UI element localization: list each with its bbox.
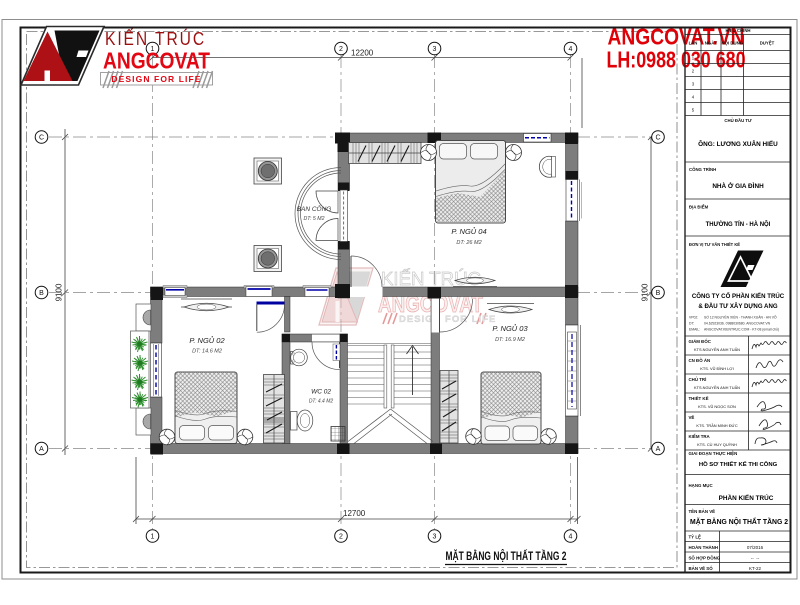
svg-text:3: 3 (433, 534, 437, 541)
svg-text:C: C (655, 135, 660, 142)
svg-text:KTS.NGUYỄN ANH TUẤN: KTS.NGUYỄN ANH TUẤN (694, 385, 740, 390)
svg-text:07/2016: 07/2016 (747, 545, 764, 550)
svg-text:KIẾN TRÚC: KIẾN TRÚC (105, 28, 206, 49)
svg-text:3: 3 (433, 46, 437, 53)
svg-text:P. NGỦ 03: P. NGỦ 03 (492, 324, 528, 333)
svg-text:DESIGN FOR LIFE: DESIGN FOR LIFE (399, 314, 496, 325)
svg-text:HIỆU CHỈNH: HIỆU CHỈNH (725, 28, 750, 33)
svg-text:1: 1 (151, 534, 155, 541)
svg-text:P. NGỦ 04: P. NGỦ 04 (451, 227, 486, 236)
svg-text:B: B (39, 290, 44, 297)
svg-text:TỶ LỆ: TỶ LỆ (689, 535, 702, 540)
svg-text:MẶT BẰNG NỘI THẤT TẦNG 2: MẶT BẰNG NỘI THẤT TẦNG 2 (446, 550, 567, 563)
svg-text:THƯỜNG TÍN - HÀ NỘI: THƯỜNG TÍN - HÀ NỘI (706, 220, 771, 228)
svg-text:VẼ: VẼ (689, 415, 695, 420)
svg-text:SỐ HỢP ĐỒNG: SỐ HỢP ĐỒNG (689, 556, 721, 561)
svg-text:NHÀ Ở GIA ĐÌNH: NHÀ Ở GIA ĐÌNH (712, 181, 764, 190)
svg-text:WC 02: WC 02 (311, 389, 331, 396)
svg-text:KIỂM TRA: KIỂM TRA (689, 434, 711, 439)
svg-text:12200: 12200 (351, 49, 374, 58)
svg-text:ANGCOVAT: ANGCOVAT (103, 48, 211, 74)
svg-text:DT: 16.9 M2: DT: 16.9 M2 (495, 337, 525, 343)
svg-text:A: A (656, 446, 661, 453)
svg-text:KTS. CÙ HUY QUỲNH: KTS. CÙ HUY QUỲNH (697, 442, 737, 447)
svg-text:KTS.NGUYỄN ANH TUẤN: KTS.NGUYỄN ANH TUẤN (694, 347, 740, 352)
svg-text:4: 4 (569, 46, 573, 53)
svg-text:B: B (656, 290, 661, 297)
svg-text:LẦN: LẦN (689, 41, 698, 46)
svg-text:SỐ 12 NGUYỄN XIỂN - THANH XUÂN: SỐ 12 NGUYỄN XIỂN - THANH XUÂN - HN VÕ (704, 315, 777, 320)
svg-text:KT-22: KT-22 (749, 566, 762, 571)
svg-text:NGÀY: NGÀY (705, 41, 718, 46)
svg-text:GIÁM ĐỐC: GIÁM ĐỐC (689, 339, 712, 344)
svg-text:CHỦ TRÌ: CHỦ TRÌ (689, 377, 707, 382)
svg-text:DT: 14.6 M2: DT: 14.6 M2 (192, 349, 222, 355)
svg-text:CN ĐỒ ÁN: CN ĐỒ ÁN (689, 358, 711, 363)
svg-text:CÔNG TY CỔ PHẦN KIẾN TRÚC: CÔNG TY CỔ PHẦN KIẾN TRÚC (692, 292, 785, 300)
svg-text:DESIGN FOR LIFE: DESIGN FOR LIFE (111, 74, 201, 84)
svg-text:KTS. VŨ ĐÌNH LỢI: KTS. VŨ ĐÌNH LỢI (700, 366, 733, 371)
svg-text:HOÀN THÀNH: HOÀN THÀNH (689, 545, 719, 550)
svg-text:2: 2 (339, 534, 343, 541)
svg-text:BẢN VẼ SỐ: BẢN VẼ SỐ (689, 566, 714, 571)
svg-text:DUYỆT: DUYỆT (760, 41, 775, 46)
svg-text:CÔNG TRÌNH: CÔNG TRÌNH (689, 167, 716, 172)
svg-text:VP02:: VP02: (689, 316, 698, 320)
svg-text:THIẾT KẾ: THIẾT KẾ (689, 396, 709, 401)
svg-text:A: A (39, 446, 44, 453)
svg-text:BAN CÔNG: BAN CÔNG (297, 204, 332, 213)
svg-text:2: 2 (339, 46, 343, 53)
svg-text:DT: 4.4 M2: DT: 4.4 M2 (309, 399, 334, 405)
svg-text:C: C (39, 135, 44, 142)
svg-text:KTS. VŨ NGỌC SƠN: KTS. VŨ NGỌC SƠN (698, 404, 736, 409)
svg-text:DT: 26 M2: DT: 26 M2 (456, 240, 481, 246)
svg-text:& ĐẦU TƯ XÂY DỰNG ANG: & ĐẦU TƯ XÂY DỰNG ANG (698, 303, 777, 310)
svg-text:NỘI DUNG: NỘI DUNG (722, 41, 744, 46)
svg-text:-- --: -- -- (751, 556, 760, 561)
svg-text:GIAI ĐOẠN THỰC HIỆN: GIAI ĐOẠN THỰC HIỆN (689, 451, 738, 456)
svg-text:9100: 9100 (641, 283, 650, 301)
svg-text:ĐƠN VỊ TƯ VẤN THIẾT KẾ: ĐƠN VỊ TƯ VẤN THIẾT KẾ (689, 242, 740, 247)
svg-text:HỒ SƠ THIẾT KẾ THI CÔNG: HỒ SƠ THIẾT KẾ THI CÔNG (699, 460, 778, 468)
svg-text:04.62923036. 0988030680. ANGCO: 04.62923036. 0988030680. ANGCOVAT.VN (704, 322, 771, 326)
svg-text:HẠNG MỤC: HẠNG MỤC (689, 483, 714, 488)
svg-text:ĐỊA ĐIỂM: ĐỊA ĐIỂM (689, 205, 709, 210)
svg-text:DT:: DT: (689, 322, 694, 326)
svg-text:P. NGỦ 02: P. NGỦ 02 (189, 336, 225, 345)
svg-text:ANGCOVAT.KIENTRUC.COM - KT-08: ANGCOVAT.KIENTRUC.COM - KT-08 (email chủ… (704, 328, 779, 332)
svg-text:DT: 5 M2: DT: 5 M2 (304, 216, 325, 222)
svg-text:KTS. TRẦN MINH ĐỨC: KTS. TRẦN MINH ĐỨC (696, 423, 737, 428)
svg-text:CHỦ ĐẦU TƯ: CHỦ ĐẦU TƯ (724, 118, 752, 123)
svg-text:9100: 9100 (55, 283, 64, 301)
svg-text:TÊN BẢN VẼ: TÊN BẢN VẼ (689, 509, 716, 514)
svg-text:12700: 12700 (343, 509, 366, 518)
svg-text:EMAIL:: EMAIL: (689, 328, 700, 332)
svg-text:4: 4 (569, 534, 573, 541)
